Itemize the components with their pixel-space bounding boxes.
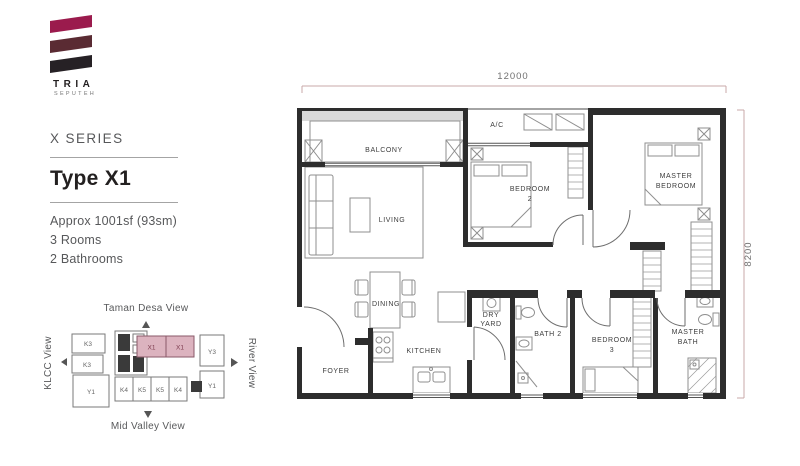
balcony-sliding-door bbox=[325, 163, 440, 165]
room-label-master-bedroom-line2: BEDROOM bbox=[656, 183, 696, 190]
master-bath-door bbox=[657, 298, 685, 326]
room-label-kitchen: KITCHEN bbox=[407, 348, 442, 355]
unit-block-x1b-label: X1 bbox=[176, 345, 184, 352]
view-label-top: Taman Desa View bbox=[104, 303, 189, 314]
unit-type-title: Type X1 bbox=[50, 167, 220, 191]
ac-units bbox=[524, 114, 584, 130]
room-label-bedroom2-line1: BEDROOM bbox=[510, 186, 550, 193]
room-label-bedroom2-line2: 2 bbox=[528, 196, 533, 203]
unit-block-k4a-label: K4 bbox=[120, 387, 128, 394]
entry-door bbox=[304, 307, 344, 347]
logo-stripe-crimson bbox=[50, 15, 92, 33]
bedroom2-door bbox=[553, 215, 583, 245]
balcony-outline bbox=[310, 121, 460, 162]
unit-block-k3b-label: K3 bbox=[83, 362, 91, 369]
room-label-foyer: FOYER bbox=[322, 368, 349, 375]
key-plan: Taman Desa View Mid Valley View KLCC Vie… bbox=[15, 295, 275, 445]
bedroom2-window bbox=[468, 143, 530, 145]
unit-block-k5b-label: K5 bbox=[156, 387, 164, 394]
brand-logo: TRIA SEPUTEH bbox=[50, 18, 96, 97]
room-label-master-bedroom-line1: MASTER bbox=[660, 173, 693, 180]
lift-block bbox=[191, 381, 202, 392]
unit-block-k3a-label: K3 bbox=[84, 341, 92, 348]
room-label-dry-yard-line1: DRY bbox=[483, 312, 499, 319]
dining-table bbox=[370, 272, 400, 328]
arrow-left-icon bbox=[61, 358, 67, 366]
unit-info-panel: X SERIES Type X1 Approx 1001sf (93sm) 3 … bbox=[50, 131, 220, 269]
room-label-dry-yard-line2: YARD bbox=[480, 321, 501, 328]
unit-block-y1-left-label: Y1 bbox=[87, 389, 95, 396]
toilet-master-bath bbox=[699, 313, 720, 326]
unit-area: Approx 1001sf (93sm) bbox=[50, 212, 220, 231]
arrow-right-icon bbox=[231, 358, 238, 367]
floor-plan: 12000 8200 bbox=[285, 55, 760, 425]
brand-name: TRIA bbox=[50, 79, 96, 90]
bed-bedroom2 bbox=[471, 162, 531, 227]
wardrobe-bedroom2 bbox=[568, 147, 583, 198]
brochure-page: { "brand": {"name": "TRIA", "subtitle": … bbox=[0, 0, 800, 466]
toilet-bath2 bbox=[516, 306, 535, 319]
unit-rooms: 3 Rooms bbox=[50, 231, 220, 250]
room-label-master-bath-line2: BATH bbox=[678, 339, 699, 346]
room-label-bath2: BATH 2 bbox=[534, 331, 562, 338]
dimension-height: 8200 bbox=[737, 110, 754, 398]
fridge bbox=[438, 292, 465, 322]
core-cell bbox=[133, 356, 144, 372]
shower-bath2 bbox=[516, 361, 537, 387]
unit-details: Approx 1001sf (93sm) 3 Rooms 2 Bathrooms bbox=[50, 212, 220, 269]
room-label-master-bath-line1: MASTER bbox=[672, 329, 705, 336]
dimension-height-label: 8200 bbox=[743, 241, 754, 266]
shower-master-bath bbox=[688, 358, 716, 393]
room-label-dining: DINING bbox=[372, 301, 400, 308]
bed-bedroom3 bbox=[583, 367, 638, 393]
dimension-width: 12000 bbox=[302, 71, 726, 93]
unit-block-y3-label: Y3 bbox=[208, 349, 216, 356]
balcony-parapet bbox=[297, 108, 468, 111]
unit-block-y1-right-label: Y1 bbox=[208, 383, 216, 390]
core-cell bbox=[118, 334, 130, 351]
unit-block-k4b-label: K4 bbox=[174, 387, 182, 394]
hall-cabinet bbox=[643, 251, 661, 291]
bath2-door bbox=[538, 298, 567, 327]
unit-block-k5a-label: K5 bbox=[138, 387, 146, 394]
kitchen-sink bbox=[413, 367, 450, 393]
dimension-width-label: 12000 bbox=[497, 71, 528, 82]
key-plan-blocks: K3 K3 Y1 X1 X1 Y3 Y1 K4 K5 K5 K4 bbox=[72, 331, 224, 407]
unit-bathrooms: 2 Bathrooms bbox=[50, 250, 220, 269]
wardrobe-bedroom3 bbox=[633, 295, 651, 367]
master-bedroom-door bbox=[593, 210, 630, 247]
divider-line bbox=[50, 157, 178, 158]
unit-block-x1a-label: X1 bbox=[148, 345, 156, 352]
room-label-balcony: BALCONY bbox=[365, 147, 403, 154]
wardrobe-master bbox=[691, 222, 712, 292]
logo-stripe-maroon bbox=[50, 35, 92, 53]
room-label-bedroom3-line2: 3 bbox=[610, 347, 615, 354]
view-label-right: River View bbox=[246, 338, 257, 389]
divider-line bbox=[50, 202, 178, 203]
arrow-up-icon bbox=[142, 321, 150, 328]
basin-bath2 bbox=[516, 337, 532, 350]
balcony-canopy bbox=[302, 111, 463, 121]
room-label-ac: A/C bbox=[490, 122, 503, 129]
coffee-table bbox=[350, 198, 370, 232]
view-label-bottom: Mid Valley View bbox=[111, 421, 186, 432]
core-cell bbox=[118, 355, 130, 372]
room-label-bedroom3-line1: BEDROOM bbox=[592, 337, 632, 344]
brand-subtitle: SEPUTEH bbox=[50, 91, 96, 97]
arrow-down-icon bbox=[144, 411, 152, 418]
sofa bbox=[309, 175, 333, 255]
bedroom3-door bbox=[582, 298, 610, 326]
logo-stripe-black bbox=[50, 55, 92, 73]
stove-counter bbox=[373, 332, 393, 362]
view-label-left: KLCC View bbox=[43, 336, 54, 390]
series-label: X SERIES bbox=[50, 131, 220, 146]
room-label-living: LIVING bbox=[379, 217, 406, 224]
dry-yard-door bbox=[474, 327, 505, 360]
